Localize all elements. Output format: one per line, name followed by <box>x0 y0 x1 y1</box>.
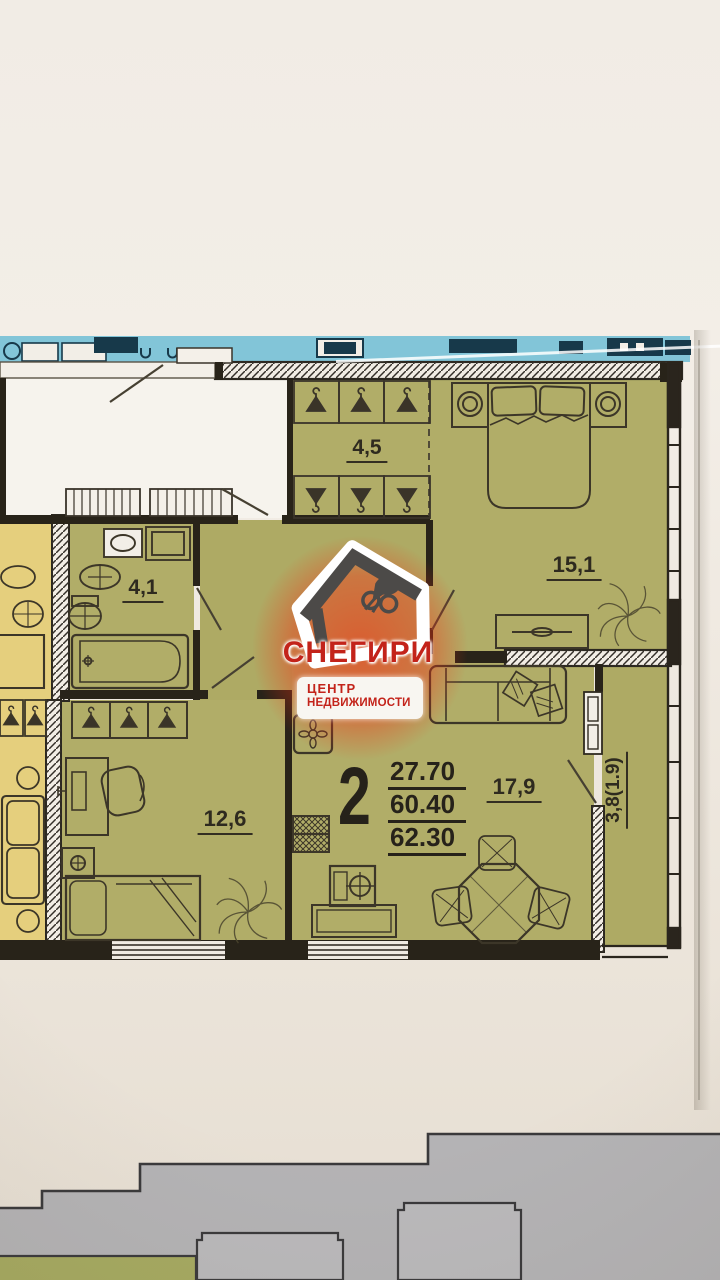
room-label-bedroom: 15,1 <box>547 552 602 578</box>
brochure-photo-page: 4,5 15,1 4,1 12,6 17,9 3,8(1.9) 2 27.70 … <box>0 0 720 1280</box>
room-label-bathroom: 4,1 <box>122 576 163 600</box>
area-living: 27.70 <box>388 757 466 790</box>
watermark-banner: ЦЕНТР НЕДВИЖИМОСТИ <box>297 677 423 719</box>
watermark-tagline-1: ЦЕНТР <box>307 681 423 696</box>
watermark-brand-text: СНЕГИРИ <box>283 636 433 670</box>
room-label-room: 12,6 <box>198 806 253 832</box>
area-total: 62.30 <box>388 823 466 856</box>
apartment-areas-block: 27.70 60.40 62.30 <box>388 757 466 856</box>
apartment-rooms-count: 2 <box>338 756 371 838</box>
room-label-kitchen-living: 17,9 <box>487 774 542 800</box>
building-elevation <box>0 1134 720 1280</box>
balcony-door-unit <box>584 692 602 754</box>
area-apartment: 60.40 <box>388 790 466 823</box>
room-label-balcony: 3,8(1.9) <box>603 751 625 828</box>
room-label-wardrobe: 4,5 <box>346 436 387 460</box>
watermark-tagline-2: НЕДВИЖИМОСТИ <box>307 696 423 710</box>
